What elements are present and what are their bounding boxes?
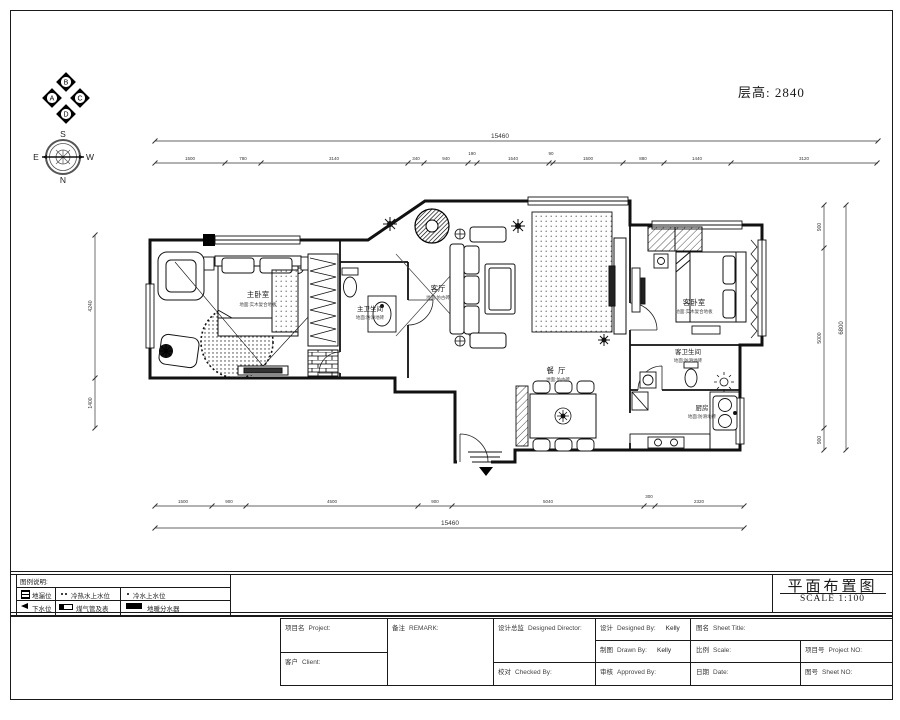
dim-total-top: 15460 bbox=[491, 133, 509, 140]
floor-drain-icon bbox=[21, 590, 30, 599]
marker-letter: B bbox=[64, 80, 69, 87]
floor-height-note: 层高: 2840 bbox=[738, 82, 805, 101]
tb-drawn-en: Drawn By: bbox=[617, 647, 647, 654]
svg-text:4500: 4500 bbox=[327, 499, 338, 504]
tb-project-cn: 项目名 bbox=[285, 625, 305, 632]
svg-text:940: 940 bbox=[442, 156, 450, 161]
tb-project: 项目名Project: bbox=[285, 622, 331, 632]
kitchen-sink bbox=[713, 396, 737, 430]
tb-scale-en: Scale: bbox=[713, 647, 731, 654]
room-sub: 地面:实木复合地板 bbox=[239, 301, 277, 308]
tb-remark: 备注REMARK: bbox=[392, 622, 439, 632]
bar-counter bbox=[516, 386, 528, 446]
tb-projno-cn: 项目号 bbox=[805, 647, 825, 654]
room-sub: 地面:仿古砖 bbox=[546, 376, 570, 383]
strip-rule bbox=[10, 574, 893, 575]
tb-sheetno: 图号Sheet NO: bbox=[805, 666, 852, 676]
tb-rule bbox=[280, 685, 893, 686]
marker-letter: D bbox=[63, 112, 68, 119]
manifold-icon bbox=[126, 603, 142, 609]
tb-designed-en: Designed By: bbox=[617, 625, 656, 632]
tb-drawn-cn: 制图 bbox=[600, 647, 613, 654]
legend-title: 图例说明: bbox=[20, 576, 48, 586]
tb-designed-value: Kelly bbox=[666, 625, 680, 632]
room-name: 客卧室 bbox=[683, 297, 706, 307]
tb-checked: 校对Checked By: bbox=[498, 666, 552, 676]
master-bath-vanity bbox=[368, 296, 396, 332]
dining-centerpiece bbox=[555, 408, 571, 424]
legend-rule bbox=[16, 587, 230, 588]
legend-rule bbox=[55, 587, 56, 615]
compass-direction: W bbox=[86, 152, 94, 162]
fridge bbox=[632, 392, 648, 410]
tb-date-cn: 日期 bbox=[696, 669, 709, 676]
tb-remark-en: REMARK: bbox=[409, 625, 439, 632]
legend-item-label: 煤气管及表 bbox=[76, 603, 109, 613]
tb-approved-en: Approved By: bbox=[617, 669, 656, 676]
tb-director-en: Designed Director: bbox=[528, 625, 582, 632]
dim-total-right: 6800 bbox=[839, 321, 845, 335]
wardrobe bbox=[308, 254, 338, 346]
plant bbox=[159, 344, 173, 358]
room-sub: 地面:防滑地砖 bbox=[674, 357, 703, 364]
svg-text:1400: 1400 bbox=[88, 397, 94, 408]
dim-total-bottom: 15460 bbox=[441, 520, 459, 527]
tb-checked-cn: 校对 bbox=[498, 669, 511, 676]
svg-text:1440: 1440 bbox=[692, 156, 703, 161]
tb-approved: 审核Approved By: bbox=[600, 666, 656, 676]
hot-cold-water-icon bbox=[61, 593, 63, 595]
tb-approved-cn: 审核 bbox=[600, 669, 613, 676]
room-name: 客厅 bbox=[431, 283, 446, 293]
washing-machine bbox=[640, 372, 656, 388]
legend-item-label: 冷水上水位 bbox=[133, 590, 166, 600]
guest-wardrobe bbox=[648, 227, 702, 251]
tb-rule bbox=[280, 652, 387, 653]
tb-sheetname-en: Sheet Title: bbox=[713, 625, 746, 632]
svg-text:340: 340 bbox=[412, 156, 420, 161]
svg-text:1540: 1540 bbox=[508, 156, 519, 161]
tb-designed-cn: 设计 bbox=[600, 625, 613, 632]
hot-cold-water-icon bbox=[65, 593, 67, 595]
legend-item-label: 下水位 bbox=[32, 603, 52, 613]
dimension-right: 900 5000 900 6800 bbox=[817, 203, 849, 453]
strip-rule bbox=[10, 615, 893, 617]
master-bath-toilet bbox=[342, 268, 358, 297]
coffee-table bbox=[485, 264, 515, 314]
guest-toilet bbox=[684, 362, 698, 387]
compass-direction: N bbox=[60, 175, 66, 185]
strip-rule bbox=[10, 571, 893, 572]
tb-rule bbox=[280, 618, 893, 619]
guest-nightstand bbox=[654, 254, 668, 268]
tb-sheetno-cn: 图号 bbox=[805, 669, 818, 676]
tb-remark-cn: 备注 bbox=[392, 625, 405, 632]
tb-director: 设计总监Designed Director: bbox=[498, 622, 582, 632]
tb-director-cn: 设计总监 bbox=[498, 625, 524, 632]
guest-tv bbox=[632, 268, 645, 312]
compass-icon: S E W N bbox=[33, 129, 94, 185]
room-name: 餐厅 bbox=[547, 366, 570, 375]
svg-text:1500: 1500 bbox=[185, 156, 196, 161]
tb-sheetno-en: Sheet NO: bbox=[822, 669, 852, 676]
room-name: 客卫生间 bbox=[675, 347, 701, 356]
brick-feature-wall bbox=[308, 350, 338, 376]
svg-text:1500: 1500 bbox=[583, 156, 594, 161]
svg-text:900: 900 bbox=[225, 499, 233, 504]
room-sub: 地面:仿古砖 bbox=[426, 294, 450, 301]
sheet-scale: SCALE 1:100 bbox=[772, 594, 893, 604]
svg-text:90: 90 bbox=[548, 151, 554, 156]
tb-sheetname: 图名Sheet Title: bbox=[696, 622, 746, 632]
svg-text:3140: 3140 bbox=[329, 156, 340, 161]
marker-letter: A bbox=[50, 96, 55, 103]
marker-letter: C bbox=[77, 96, 82, 103]
tb-scale: 比例Scale: bbox=[696, 644, 731, 654]
tb-client-cn: 客户 bbox=[285, 659, 298, 666]
svg-text:780: 780 bbox=[239, 156, 247, 161]
tb-project-en: Project: bbox=[309, 625, 331, 632]
tb-sheetname-cn: 图名 bbox=[696, 625, 709, 632]
dimension-left: 4240 1400 bbox=[88, 233, 98, 431]
guest-bench bbox=[692, 326, 720, 334]
legend-rule bbox=[230, 574, 231, 615]
tb-date-en: Date: bbox=[713, 669, 729, 676]
gas-meter-icon bbox=[59, 604, 73, 610]
tb-rule bbox=[690, 618, 691, 685]
cold-water-icon bbox=[127, 593, 129, 595]
round-chair bbox=[415, 209, 449, 243]
dimension-top: 15460 1500780 3140340 940190 154090 1500… bbox=[153, 133, 881, 166]
room-sub: 地面:防滑地砖 bbox=[688, 413, 717, 420]
compass-direction: S bbox=[60, 129, 66, 139]
room-name: 主卫生间 bbox=[357, 304, 383, 313]
dimension-bottom: 1500900 4500900 5040300 2320 15460 bbox=[153, 494, 747, 531]
tb-projno: 项目号Project NO: bbox=[805, 644, 862, 654]
svg-text:5040: 5040 bbox=[543, 499, 554, 504]
legend-item-label: 地漏位 bbox=[32, 590, 52, 600]
tb-rule bbox=[595, 618, 596, 685]
ceiling-light-icon bbox=[714, 372, 734, 392]
legend-rule bbox=[120, 587, 121, 615]
svg-text:2320: 2320 bbox=[694, 499, 705, 504]
curtain bbox=[751, 240, 757, 338]
tb-drawn-value: Kelly bbox=[657, 647, 671, 654]
legend-item-label: 冷热水上水位 bbox=[71, 590, 110, 600]
tb-rule bbox=[493, 618, 494, 685]
tb-client: 客户Client: bbox=[285, 656, 320, 666]
direction-marker-icon: B A C D bbox=[42, 72, 90, 124]
drain-pipe-icon bbox=[21, 603, 28, 609]
column bbox=[203, 234, 215, 246]
tb-drawn: 制图Drawn By:Kelly bbox=[600, 644, 671, 654]
legend-rule bbox=[16, 574, 17, 615]
svg-text:900: 900 bbox=[817, 436, 823, 445]
legend-item-label: 地暖分水器 bbox=[147, 603, 180, 613]
drawing-sheet: B A C D S E W N 15460 bbox=[0, 0, 900, 720]
legend-rule bbox=[16, 600, 230, 601]
tb-client-en: Client: bbox=[302, 659, 320, 666]
tb-checked-en: Checked By: bbox=[515, 669, 552, 676]
svg-text:190: 190 bbox=[468, 151, 476, 156]
svg-text:900: 900 bbox=[817, 223, 823, 232]
svg-text:3120: 3120 bbox=[799, 156, 810, 161]
svg-text:5000: 5000 bbox=[817, 332, 823, 343]
room-sub: 地面:防滑地砖 bbox=[356, 314, 385, 321]
living-carpet bbox=[532, 212, 612, 332]
svg-text:900: 900 bbox=[431, 499, 439, 504]
room-sub: 地面:实木复合地板 bbox=[675, 308, 713, 315]
tb-projno-en: Project NO: bbox=[829, 647, 863, 654]
tb-rule bbox=[493, 662, 893, 663]
tb-rule bbox=[387, 618, 388, 685]
room-name: 主卧室 bbox=[247, 289, 270, 299]
tb-rule bbox=[595, 640, 893, 641]
stove bbox=[648, 437, 684, 448]
room-name: 厨房 bbox=[696, 403, 709, 412]
compass-direction: E bbox=[33, 152, 39, 162]
tb-date: 日期Date: bbox=[696, 666, 729, 676]
svg-text:4240: 4240 bbox=[88, 300, 94, 311]
tb-designed: 设计Designed By:Kelly bbox=[600, 622, 680, 632]
svg-text:300: 300 bbox=[645, 494, 653, 499]
svg-text:880: 880 bbox=[639, 156, 647, 161]
tb-scale-cn: 比例 bbox=[696, 647, 709, 654]
svg-text:1500: 1500 bbox=[178, 499, 189, 504]
strip-rule bbox=[10, 612, 893, 613]
